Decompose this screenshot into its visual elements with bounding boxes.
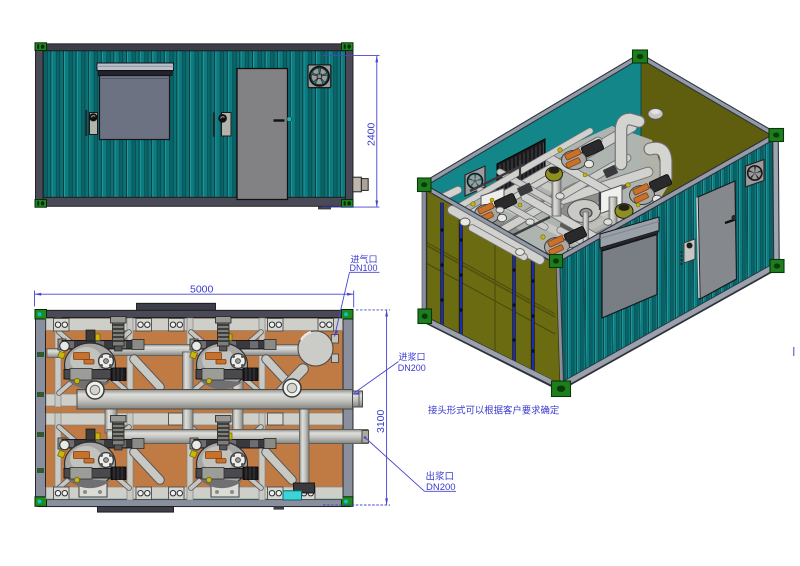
svg-text:2400: 2400 xyxy=(365,122,377,146)
svg-text:5000: 5000 xyxy=(190,284,214,296)
svg-text:进浆口: 进浆口 xyxy=(399,351,426,362)
svg-text:DN200: DN200 xyxy=(398,363,426,373)
svg-text:接头形式可以根据客户要求确定: 接头形式可以根据客户要求确定 xyxy=(428,405,559,416)
svg-text:DN100: DN100 xyxy=(350,263,378,273)
svg-text:出浆口: 出浆口 xyxy=(426,471,455,483)
svg-text:3100: 3100 xyxy=(375,409,387,433)
